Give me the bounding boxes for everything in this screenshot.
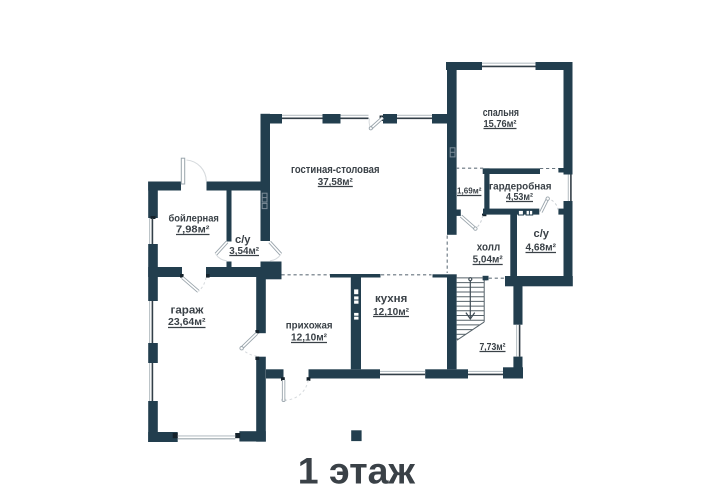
svg-text:с/у: с/у	[235, 234, 251, 246]
svg-text:гостиная-столовая: гостиная-столовая	[291, 164, 380, 176]
svg-text:бойлерная: бойлерная	[169, 213, 219, 225]
svg-text:холл: холл	[477, 241, 500, 253]
svg-text:23,64м²: 23,64м²	[168, 317, 206, 328]
svg-text:12,10м²: 12,10м²	[291, 332, 328, 343]
svg-text:гардеробная: гардеробная	[489, 180, 552, 192]
svg-text:кухня: кухня	[375, 293, 407, 305]
svg-text:спальня: спальня	[483, 107, 519, 119]
svg-text:прихожая: прихожая	[286, 319, 333, 331]
svg-text:1,69м²: 1,69м²	[457, 186, 482, 196]
svg-text:7,98м²: 7,98м²	[176, 224, 210, 235]
svg-text:с/у: с/у	[534, 228, 550, 240]
svg-text:1 этаж: 1 этаж	[298, 451, 416, 492]
svg-text:гараж: гараж	[171, 304, 204, 316]
